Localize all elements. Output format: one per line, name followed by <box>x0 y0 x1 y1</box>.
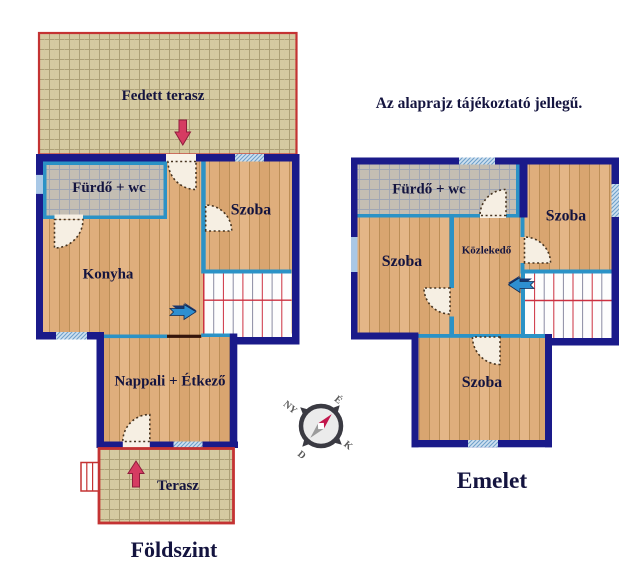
svg-text:Fürdő + wc: Fürdő + wc <box>392 182 466 198</box>
svg-text:Közlekedő: Közlekedő <box>462 245 512 257</box>
svg-text:Emelet: Emelet <box>457 468 528 494</box>
svg-text:Földszint: Földszint <box>131 537 218 562</box>
svg-text:Szoba: Szoba <box>462 374 502 391</box>
svg-text:Szoba: Szoba <box>546 208 586 225</box>
svg-text:Nappali + Étkező: Nappali + Étkező <box>114 373 226 390</box>
svg-text:Fürdő + wc: Fürdő + wc <box>72 180 146 196</box>
svg-text:Fedett terasz: Fedett terasz <box>122 88 205 104</box>
svg-text:Szoba: Szoba <box>382 253 422 270</box>
svg-text:Konyha: Konyha <box>83 267 134 283</box>
svg-text:Az alaprajz tájékoztató jelleg: Az alaprajz tájékoztató jellegű. <box>376 95 583 112</box>
svg-text:Terasz: Terasz <box>157 478 199 494</box>
svg-text:Szoba: Szoba <box>231 202 271 219</box>
